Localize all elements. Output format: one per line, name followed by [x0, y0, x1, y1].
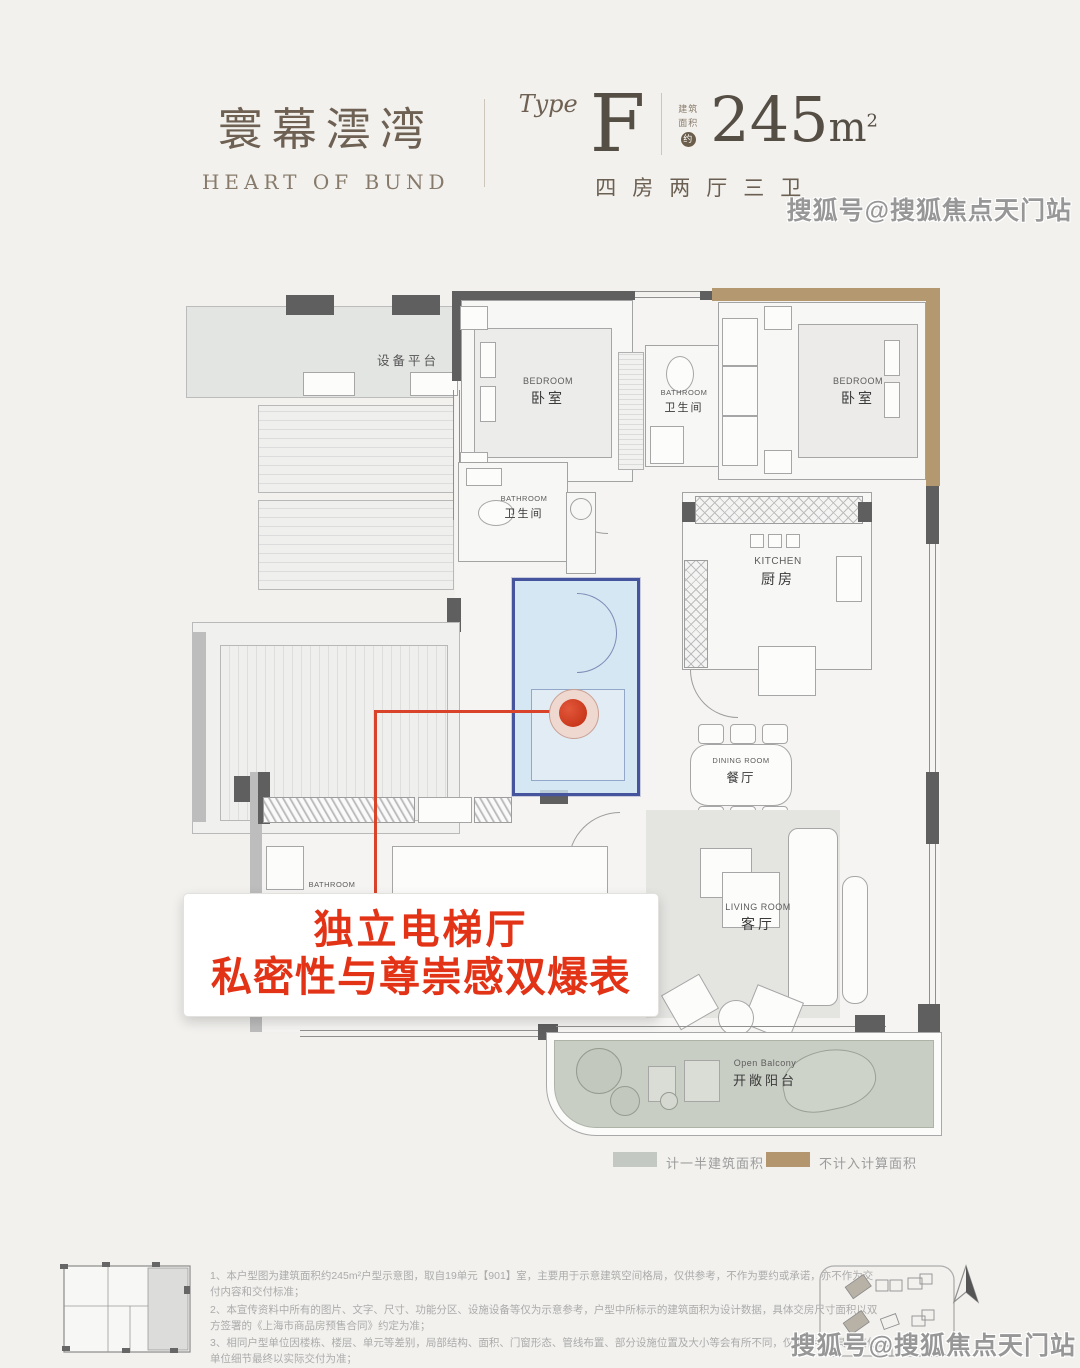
room-label-balcony: Open Balcony 开敞阳台: [700, 1058, 830, 1089]
pillow: [480, 386, 496, 422]
nightstand: [764, 306, 792, 330]
wardrobe: [722, 416, 758, 466]
nightstand: [460, 306, 488, 330]
disclaimer-item: 3、相同户型单位因楼栋、楼层、单元等差别，局部结构、面积、门窗形态、管线布置、部…: [210, 1335, 878, 1368]
dining-chair: [698, 724, 724, 744]
stairwell: [258, 405, 454, 493]
room-label-dining: DINING ROOM 餐厅: [698, 756, 784, 786]
red-marker-dot: [559, 699, 587, 727]
leader-line-vertical: [374, 710, 377, 895]
north-arrow-icon: [948, 1262, 984, 1308]
stool: [660, 1092, 678, 1110]
ac-unit: [410, 372, 458, 396]
wall-segment: [926, 486, 939, 544]
wall-segment: [858, 502, 872, 522]
bed: [392, 846, 608, 894]
stove-burner: [768, 534, 782, 548]
wall-segment: [682, 502, 695, 522]
room-label-bedroom-right: BEDROOM 卧室: [808, 376, 908, 408]
wall-segment: [452, 291, 635, 300]
room-label-bathroom-bottom: BATHROOM: [292, 880, 372, 889]
washer: [570, 498, 592, 520]
watermark-bottom: 搜狐号@搜狐焦点天门站: [791, 1326, 1076, 1362]
nightstand: [764, 450, 792, 474]
stove-burner: [786, 534, 800, 548]
dining-chair: [730, 724, 756, 744]
tv-cabinet: [842, 876, 868, 1004]
room-label-kitchen: KITCHEN 厨房: [728, 556, 828, 589]
ac-unit: [303, 372, 355, 396]
cabinet: [418, 797, 472, 823]
wall-segment: [392, 295, 440, 315]
plant: [610, 1086, 640, 1116]
poster-page: 寰幕澐湾 HEART OF BUND Type F 建筑 面积 约 245m2 …: [0, 0, 1080, 1368]
non-counted-area-band-right: [926, 288, 940, 486]
stairwell: [258, 500, 454, 590]
plant: [576, 1048, 622, 1094]
wall-segment: [926, 772, 939, 844]
elevator-hall-highlight: [512, 578, 640, 796]
window: [929, 544, 936, 772]
wall-segment: [918, 1004, 940, 1034]
wall-segment-light: [192, 632, 206, 822]
toilet: [666, 356, 694, 392]
window: [635, 291, 701, 298]
callout-line1: 独立电梯厅: [314, 907, 529, 953]
legend-label-half-area: 计一半建筑面积: [666, 1153, 764, 1172]
callout-line2: 私密性与尊崇感双爆表: [211, 953, 631, 1002]
key-plan-thumbnail: [52, 1256, 202, 1364]
legend-swatch-not-counted: [766, 1152, 810, 1167]
closet: [618, 352, 644, 470]
wardrobe-hatch: [263, 797, 415, 823]
disclaimer-item: 1、本户型图为建筑面积约245m²户型示意图，取自19单元【901】室，主要用于…: [210, 1268, 878, 1301]
pantry-cabinets: [695, 496, 863, 524]
wardrobe: [722, 318, 758, 366]
wardrobe: [722, 366, 758, 416]
breakfast-table: [758, 646, 816, 696]
pillow: [480, 342, 496, 378]
room-label-bathroom-mid: BATHROOM 卫生间: [482, 494, 566, 521]
wardrobe-hatch: [474, 797, 512, 823]
dining-chair: [762, 724, 788, 744]
stove-burner: [750, 534, 764, 548]
room-label-equipment-platform: 设备平台: [348, 348, 468, 369]
sink: [466, 468, 502, 486]
shower: [650, 426, 684, 464]
disclaimer-text: 1、本户型图为建筑面积约245m²户型示意图，取自19单元【901】室，主要用于…: [210, 1268, 878, 1368]
callout-box: 独立电梯厅 私密性与尊崇感双爆表: [183, 893, 659, 1017]
watermark-top: 搜狐号@搜狐焦点天门站: [787, 191, 1072, 227]
disclaimer-item: 2、本宣传资料中所有的图片、文字、尺寸、功能分区、设施设备等仅为示意参考，户型中…: [210, 1302, 878, 1335]
room-label-living: LIVING ROOM 客厅: [700, 902, 816, 934]
window: [300, 1030, 538, 1037]
room-label-bedroom-left: BEDROOM 卧室: [498, 376, 598, 408]
non-counted-area-band-top: [712, 288, 940, 301]
legend-label-not-counted: 不计入计算面积: [819, 1153, 917, 1172]
kitchen-cabinets: [684, 560, 708, 668]
legend-swatch-half-area: [613, 1152, 657, 1167]
door-arc: [577, 593, 617, 633]
window: [929, 844, 936, 1004]
pillow: [884, 340, 900, 376]
room-label-bathroom-top: BATHROOM 卫生间: [642, 388, 726, 415]
door-arc: [577, 633, 617, 673]
leader-line-horizontal: [376, 710, 552, 713]
kitchen-sink: [836, 556, 862, 602]
wall-segment: [286, 295, 334, 315]
